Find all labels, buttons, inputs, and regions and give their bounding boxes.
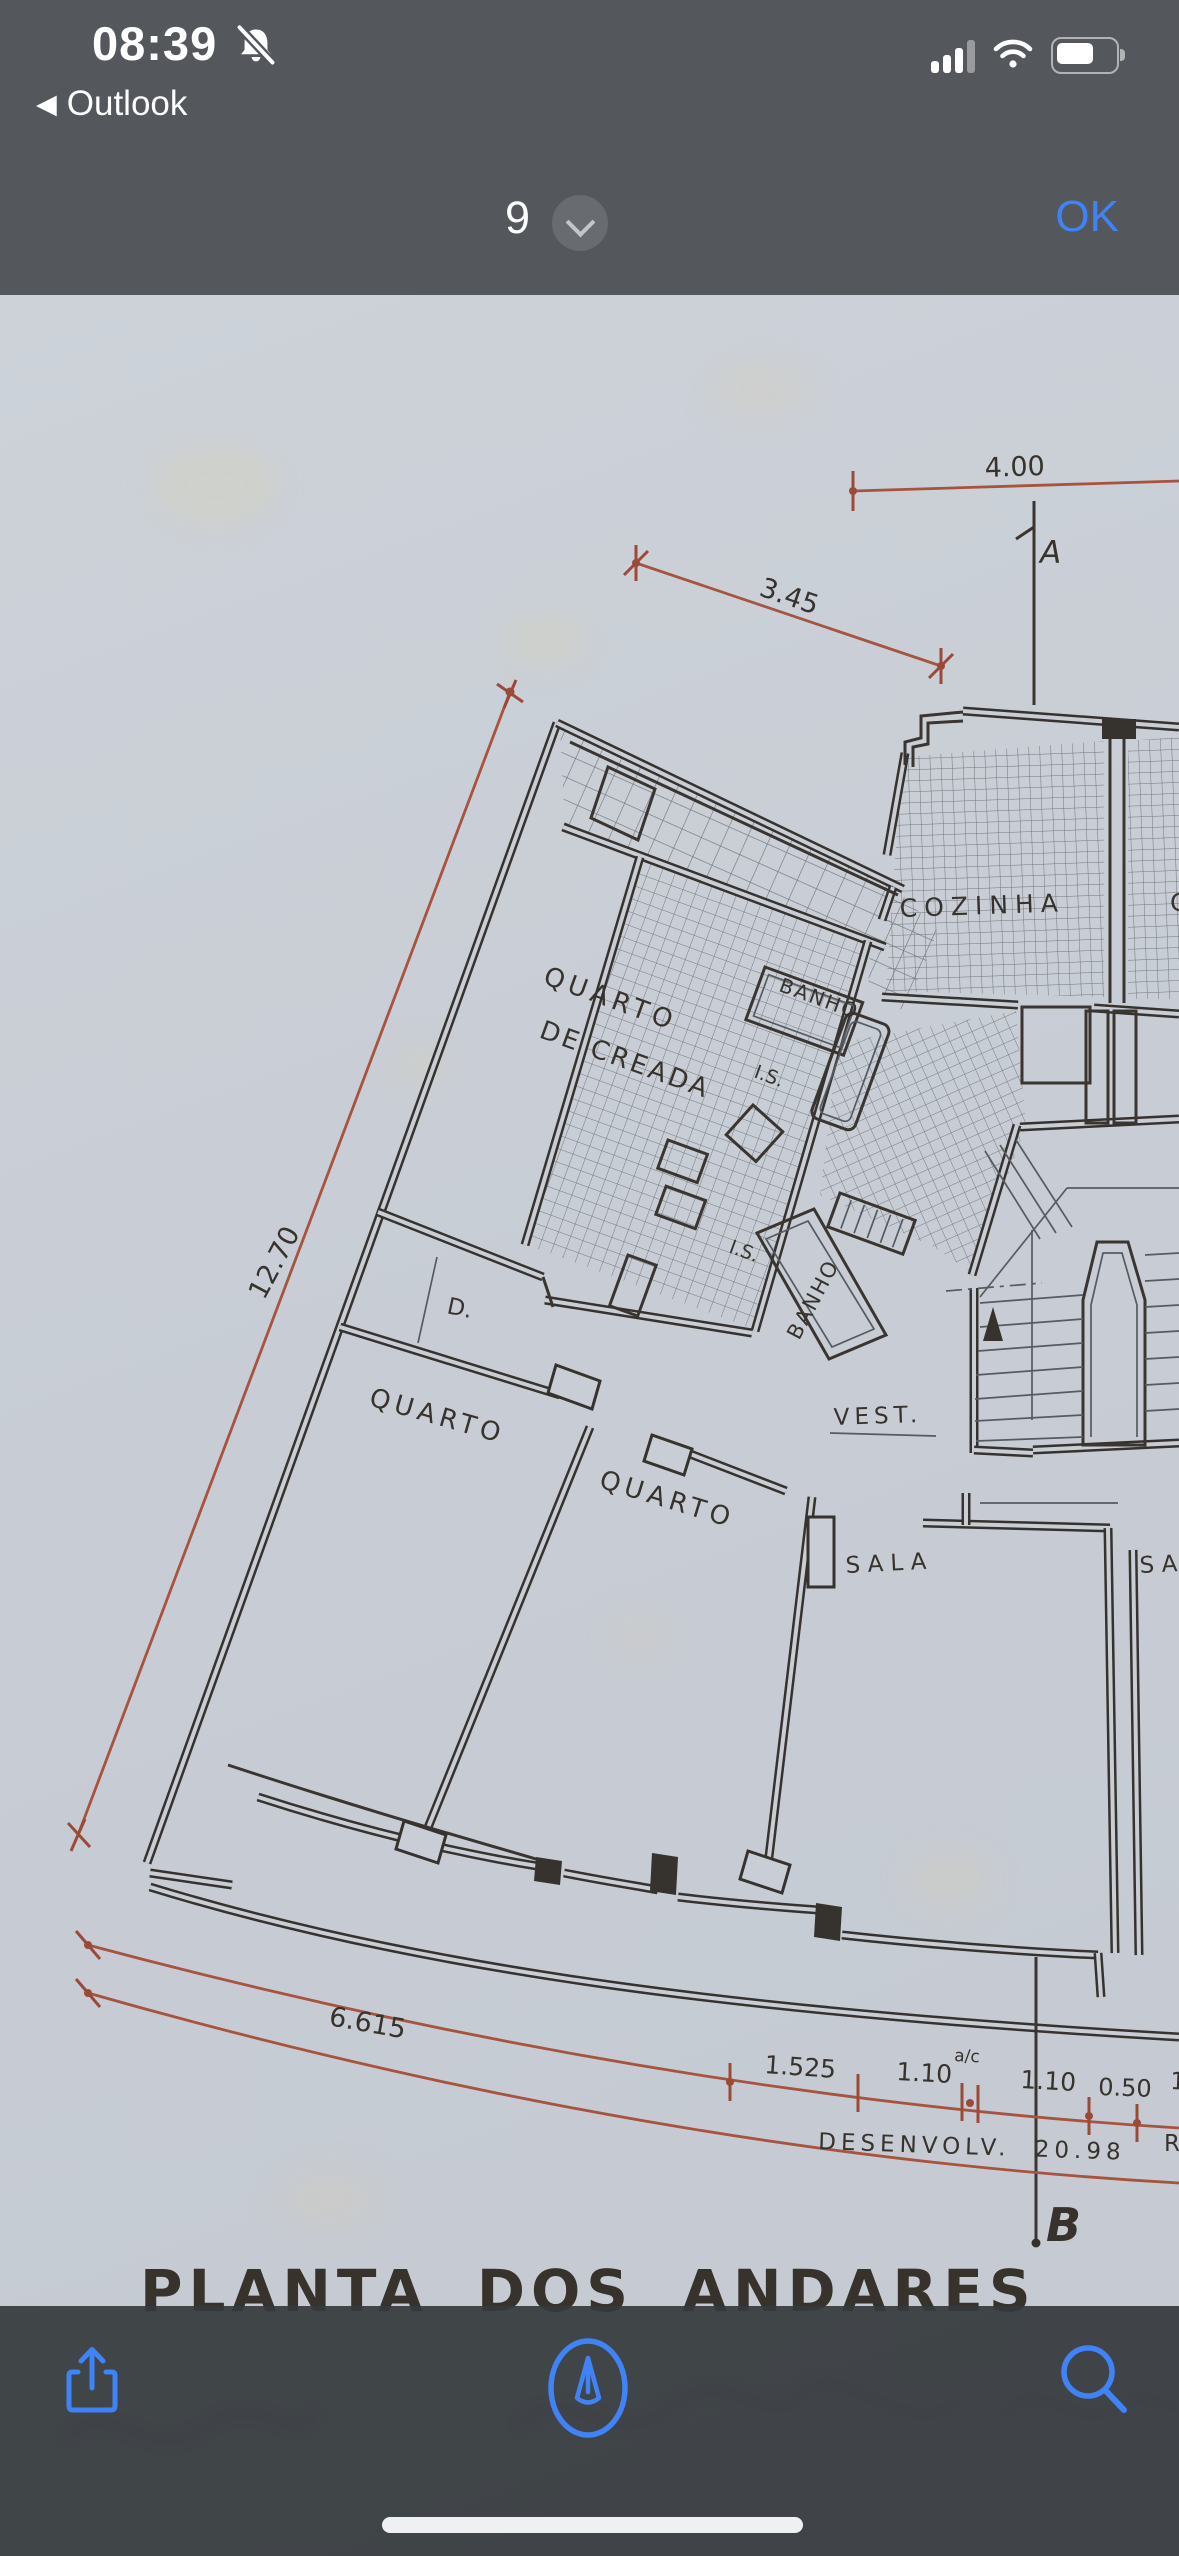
room-label-vest: VEST. xyxy=(833,1402,922,1431)
cellular-signal-icon xyxy=(931,39,975,73)
dim-developed: DESENVOLV. 20.98 xyxy=(818,2129,1126,2166)
section-marker-a: A xyxy=(1038,535,1061,571)
bottom-toolbar xyxy=(0,2306,1179,2556)
status-and-header-bar: 08:39 ◀ Outlook 9 xyxy=(0,0,1179,295)
floor-plan-drawing: QUARTO DE CREADA BANHO I.S. I.S. BANHO C… xyxy=(0,295,1179,2556)
dim-developed-partial: R xyxy=(1164,2131,1179,2157)
markup-button[interactable] xyxy=(546,2336,630,2445)
chevron-down-icon xyxy=(566,208,596,238)
search-button[interactable] xyxy=(1056,2342,1132,2423)
markup-icon xyxy=(546,2336,630,2440)
dim-left: 12.70 xyxy=(243,1221,307,1304)
dim-seg-partial: 1 xyxy=(1170,2067,1179,2096)
back-chevron-icon: ◀ xyxy=(36,91,57,118)
home-indicator[interactable] xyxy=(382,2517,803,2533)
wifi-icon xyxy=(992,36,1034,75)
back-button[interactable]: ◀ Outlook xyxy=(36,84,187,124)
section-marker-b: B xyxy=(1046,2198,1081,2252)
red-dimensions xyxy=(68,471,1179,2183)
status-time: 08:39 xyxy=(92,16,217,71)
share-icon xyxy=(64,2344,120,2416)
search-icon xyxy=(1056,2342,1132,2418)
dim-seg2-note: a/c xyxy=(954,2046,981,2067)
plan-labels: QUARTO DE CREADA BANHO I.S. I.S. BANHO C… xyxy=(140,451,1179,2325)
room-label-sala-partial: SA xyxy=(1139,1551,1179,1579)
room-label-closet: D. xyxy=(445,1293,475,1324)
share-button[interactable] xyxy=(64,2344,120,2421)
page-selector-button[interactable] xyxy=(552,195,608,251)
room-label-quarto-mid: QUARTO xyxy=(596,1465,738,1535)
room-label-cozinha: COZINHA xyxy=(899,888,1065,923)
ok-button[interactable]: OK xyxy=(1055,192,1119,242)
room-label-cozinha-partial: C xyxy=(1170,888,1179,917)
dim-seg2: 1.10 xyxy=(896,2057,953,2089)
dim-seg1: 1.525 xyxy=(764,2050,837,2084)
dim-arc: 6.615 xyxy=(327,2001,409,2045)
document-viewer-page[interactable]: QUARTO DE CREADA BANHO I.S. I.S. BANHO C… xyxy=(0,295,1179,2556)
stair-up-arrow xyxy=(983,1307,1003,1341)
back-label: Outlook xyxy=(67,84,188,124)
iphone-screen: QUARTO DE CREADA BANHO I.S. I.S. BANHO C… xyxy=(0,0,1179,2556)
room-label-sala: SALA xyxy=(845,1548,934,1579)
room-label-quarto-left: QUARTO xyxy=(366,1383,509,1450)
dim-seg4: 0.50 xyxy=(1098,2073,1152,2103)
page-indicator: 9 xyxy=(505,192,530,244)
status-icons xyxy=(931,36,1119,75)
dim-top: 4.00 xyxy=(984,451,1045,484)
dim-seg3: 1.10 xyxy=(1020,2065,1077,2097)
bell-slash-icon xyxy=(234,24,278,73)
stair-steps xyxy=(975,1253,1179,1441)
battery-icon xyxy=(1051,37,1119,74)
